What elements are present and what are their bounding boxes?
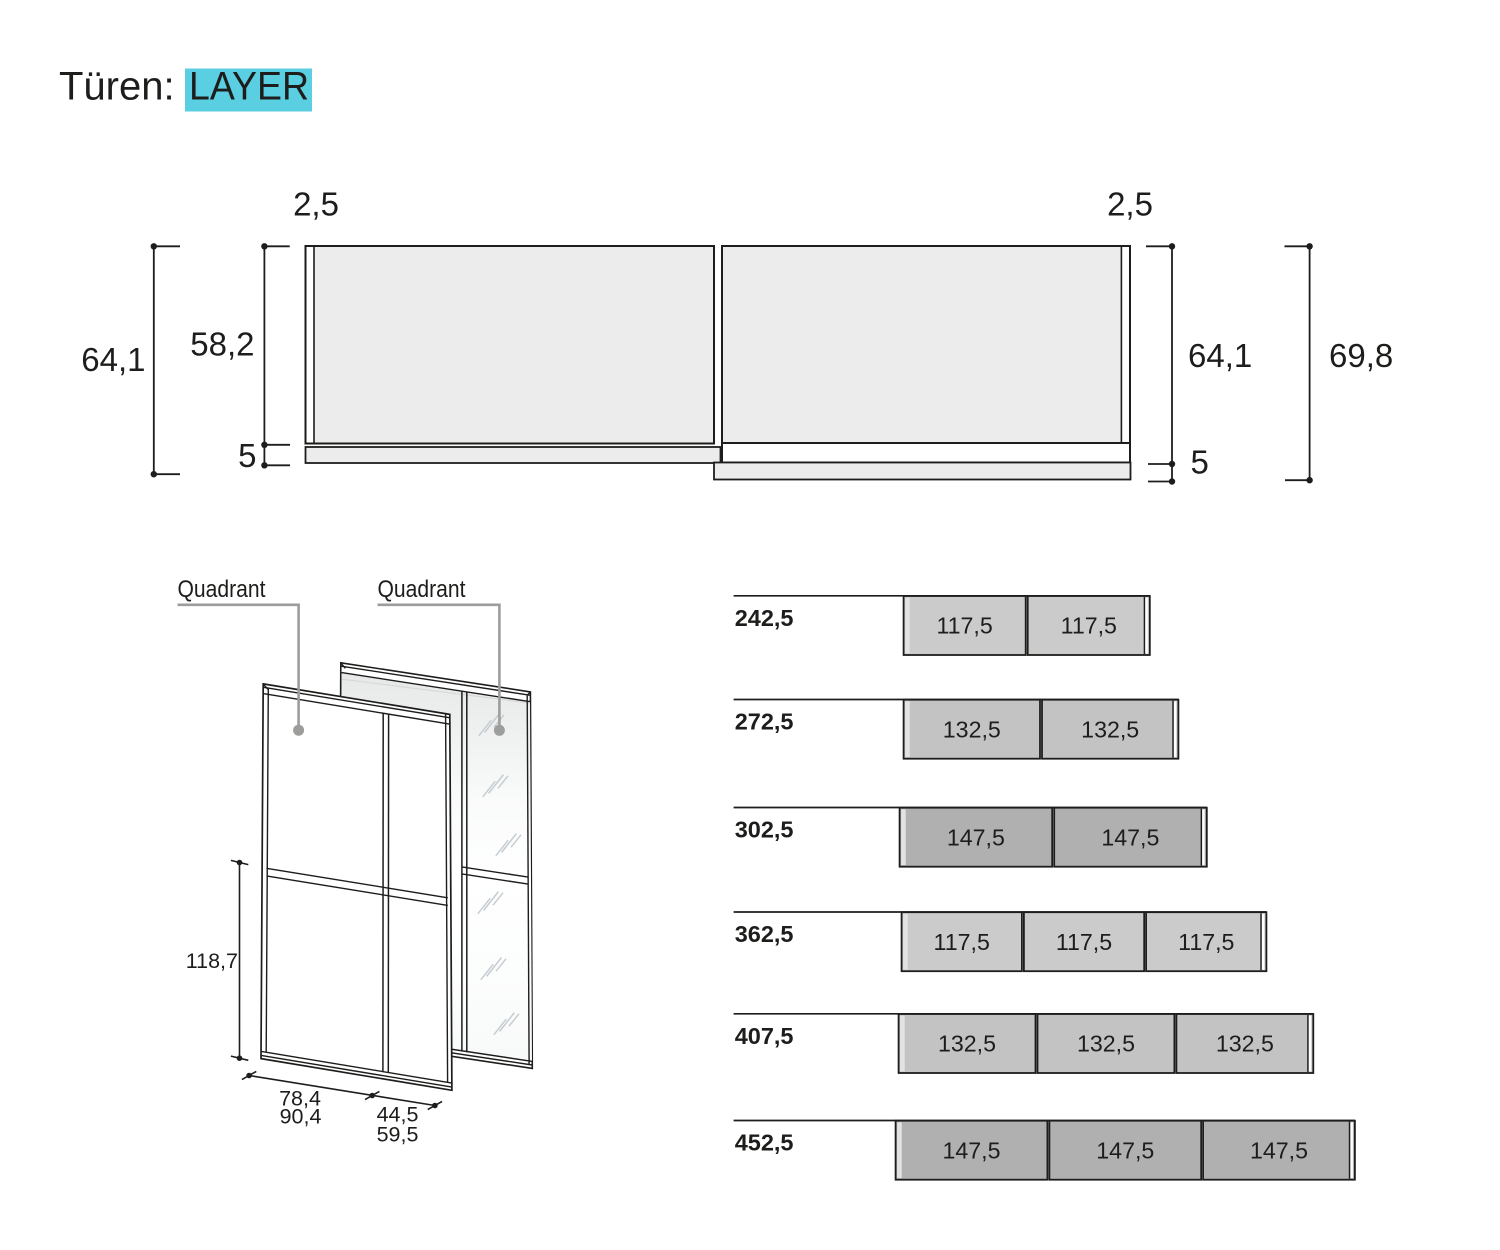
svg-text:132,5: 132,5	[1216, 1031, 1274, 1057]
svg-text:69,8: 69,8	[1329, 337, 1393, 374]
svg-text:147,5: 147,5	[1101, 824, 1159, 850]
svg-text:302,5: 302,5	[735, 817, 794, 843]
svg-text:Türen:: Türen:	[59, 65, 175, 109]
svg-text:147,5: 147,5	[1096, 1137, 1154, 1163]
svg-text:147,5: 147,5	[947, 824, 1005, 850]
svg-text:2,5: 2,5	[1107, 186, 1153, 223]
svg-text:90,4: 90,4	[280, 1104, 322, 1128]
svg-text:147,5: 147,5	[942, 1137, 1000, 1163]
svg-text:132,5: 132,5	[1077, 1031, 1135, 1057]
svg-text:117,5: 117,5	[1178, 929, 1234, 955]
svg-text:LAYER: LAYER	[189, 65, 309, 109]
svg-text:Quadrant: Quadrant	[378, 576, 466, 603]
svg-text:5: 5	[1191, 444, 1209, 481]
svg-text:58,2: 58,2	[190, 326, 254, 363]
svg-text:407,5: 407,5	[735, 1023, 794, 1049]
svg-text:5: 5	[238, 437, 256, 474]
svg-text:132,5: 132,5	[938, 1031, 996, 1057]
svg-text:Quadrant: Quadrant	[178, 576, 266, 603]
svg-text:64,1: 64,1	[81, 341, 145, 378]
svg-text:242,5: 242,5	[735, 605, 794, 631]
svg-text:59,5: 59,5	[377, 1123, 419, 1147]
svg-text:452,5: 452,5	[735, 1130, 794, 1156]
svg-text:147,5: 147,5	[1250, 1137, 1308, 1163]
svg-text:272,5: 272,5	[735, 709, 794, 735]
svg-text:117,5: 117,5	[1056, 929, 1112, 955]
svg-text:64,1: 64,1	[1188, 337, 1252, 374]
svg-text:2,5: 2,5	[293, 186, 339, 223]
svg-text:117,5: 117,5	[936, 613, 992, 639]
svg-text:117,5: 117,5	[1061, 613, 1117, 639]
svg-text:132,5: 132,5	[1081, 716, 1139, 742]
svg-text:362,5: 362,5	[735, 921, 794, 947]
svg-text:117,5: 117,5	[934, 929, 990, 955]
svg-text:118,7: 118,7	[186, 949, 238, 973]
svg-text:132,5: 132,5	[943, 716, 1001, 742]
